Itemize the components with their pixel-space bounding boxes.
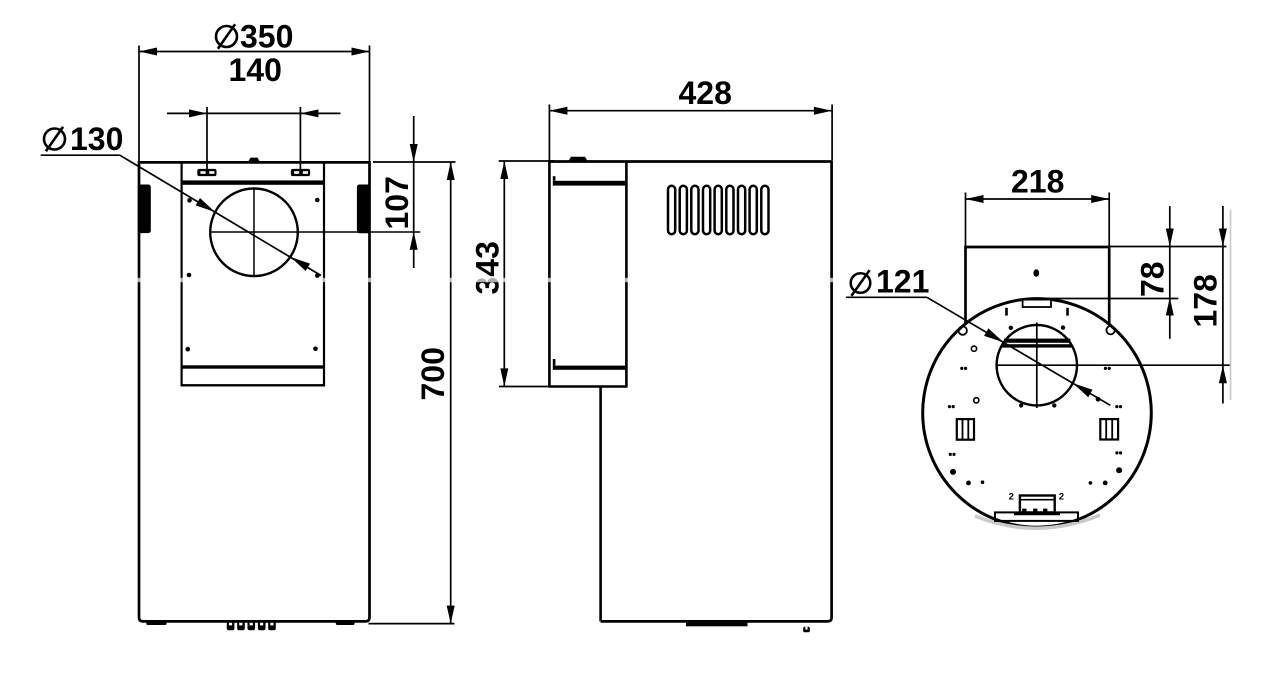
svg-text:107: 107 xyxy=(379,176,415,229)
svg-text:350: 350 xyxy=(240,19,293,55)
svg-text:130: 130 xyxy=(70,121,123,157)
svg-text:700: 700 xyxy=(415,347,451,400)
svg-text:428: 428 xyxy=(679,75,732,111)
svg-text:343: 343 xyxy=(470,241,506,294)
svg-text:121: 121 xyxy=(876,264,929,300)
svg-text:78: 78 xyxy=(1135,261,1171,297)
svg-text:2: 2 xyxy=(1059,491,1064,502)
svg-text:2: 2 xyxy=(1009,491,1014,502)
svg-text:178: 178 xyxy=(1188,274,1224,327)
svg-text:140: 140 xyxy=(229,52,282,88)
svg-text:218: 218 xyxy=(1011,164,1064,200)
